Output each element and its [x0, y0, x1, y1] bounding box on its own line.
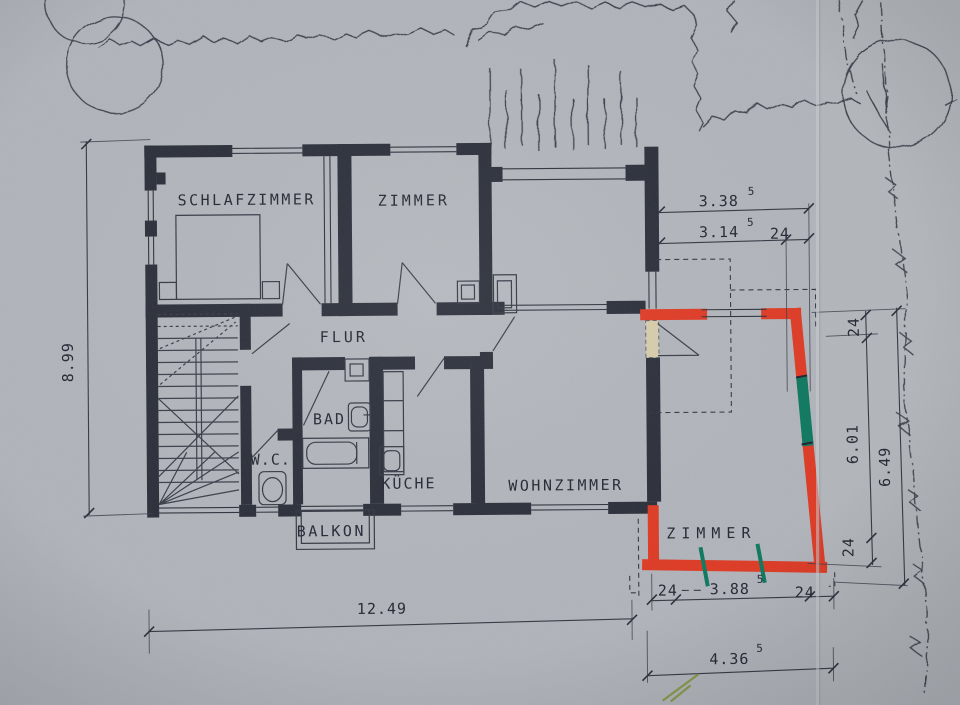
floor-plan-photo: ZIMMER SCHLAFZIMMER ZIMMER FLUR BAD W.C.…: [0, 0, 960, 705]
photo-vignette-overlay: [0, 0, 960, 705]
floor-plan-canvas: ZIMMER SCHLAFZIMMER ZIMMER FLUR BAD W.C.…: [0, 0, 960, 705]
